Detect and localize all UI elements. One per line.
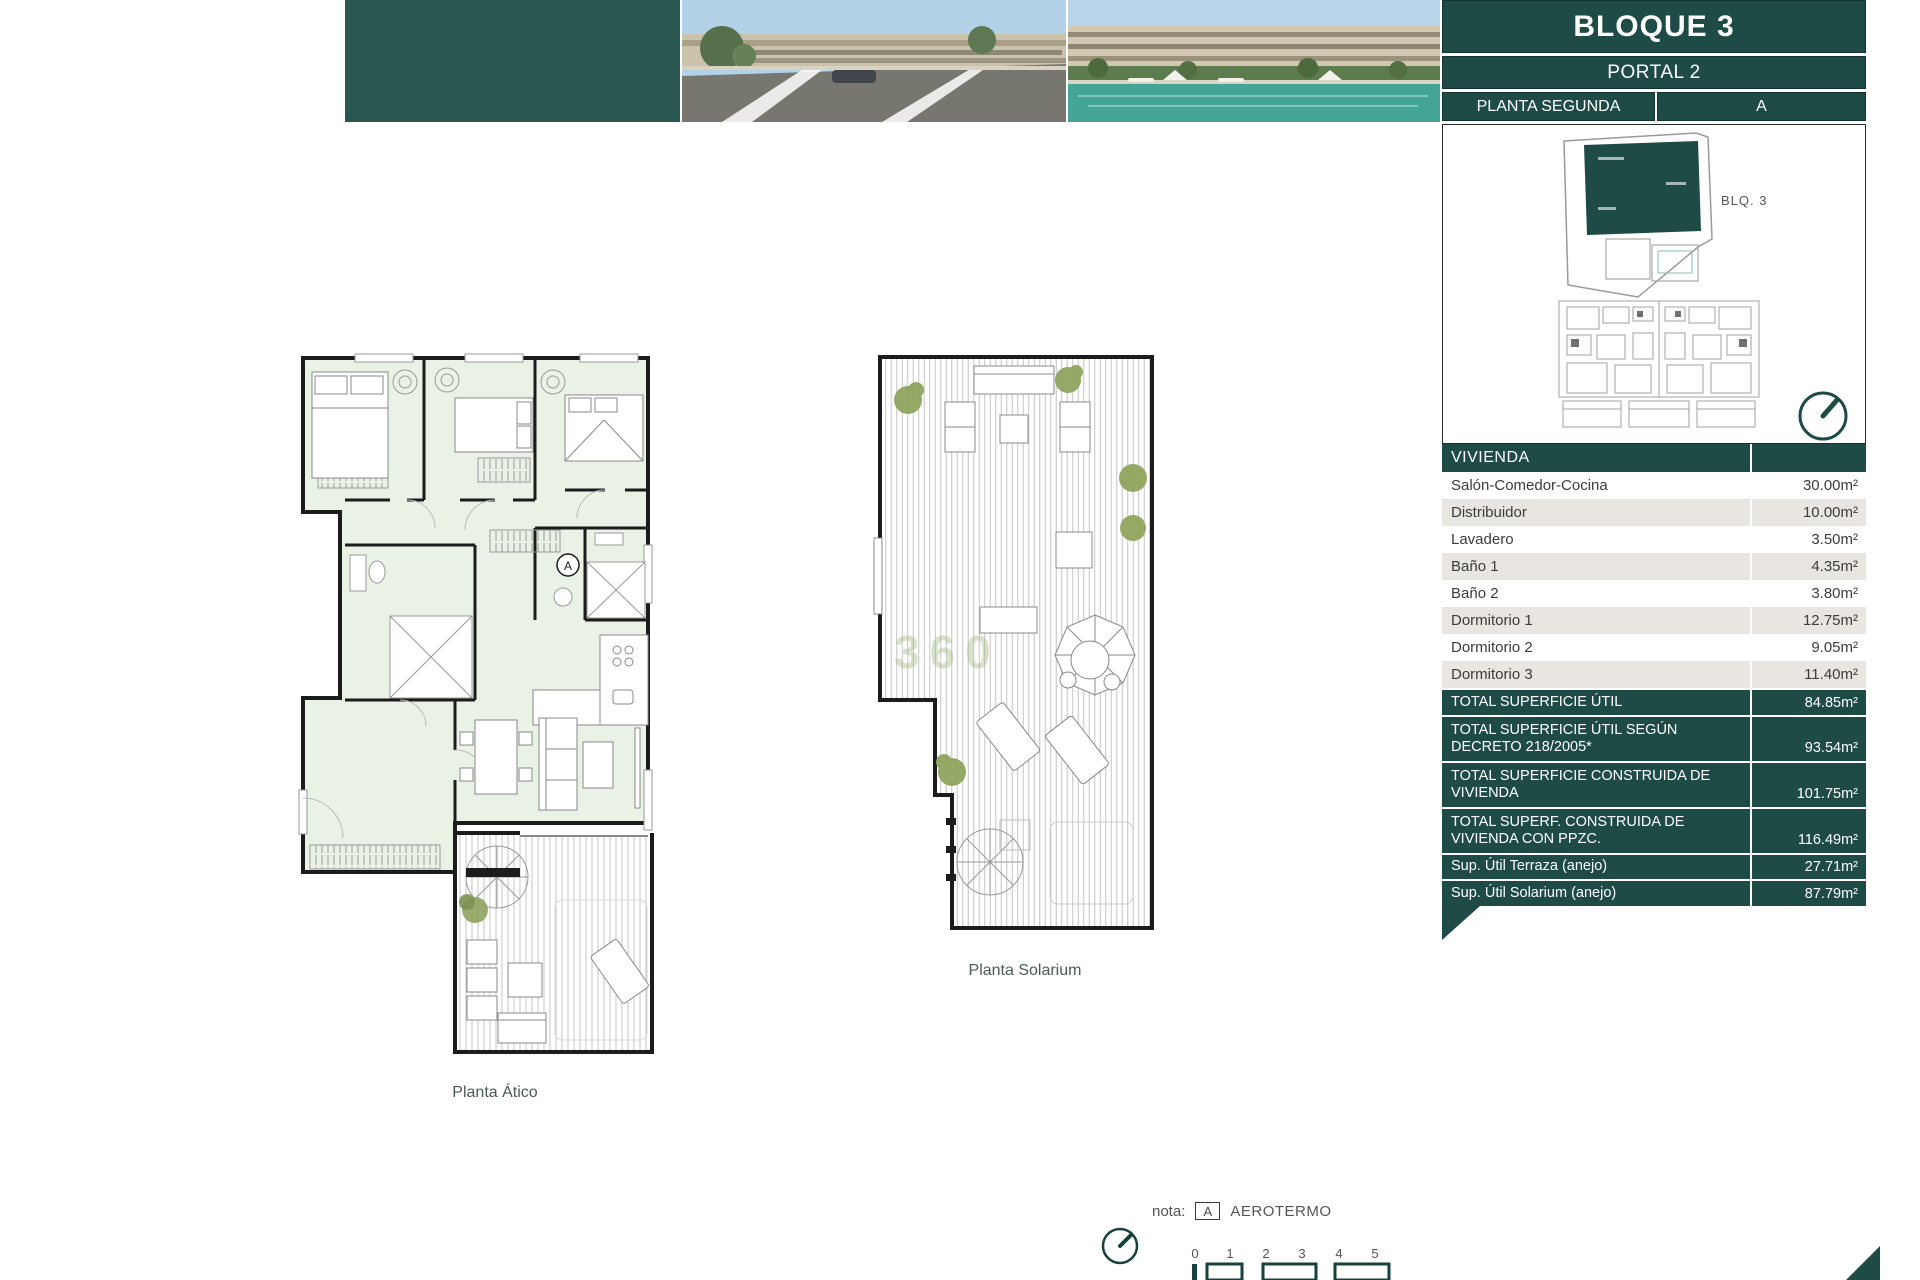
site-plan-block-label: BLQ. 3	[1721, 193, 1767, 208]
table-row: Dormitorio 2 9.05m²	[1442, 634, 1866, 661]
brochure-page: BLOQUE 3 PORTAL 2 PLANTA SEGUNDA A	[0, 0, 1920, 1280]
total-label: TOTAL SUPERFICIE ÚTIL	[1442, 690, 1752, 715]
total-value: 93.54m²	[1752, 717, 1866, 761]
table-row: Distribuidor 10.00m²	[1442, 499, 1866, 526]
scale-tick: 0	[1191, 1246, 1198, 1261]
block-title-text: BLOQUE 3	[1573, 10, 1734, 44]
unit-label: A	[1756, 98, 1767, 116]
key-plan-box: BLQ. 3	[1442, 124, 1866, 444]
room-area: 30.00m²	[1752, 472, 1866, 499]
nota-row: nota: A AEROTERMO	[1152, 1202, 1332, 1220]
room-label: Dormitorio 1	[1442, 607, 1752, 634]
scale-tick: 4	[1335, 1246, 1342, 1261]
site-plan: BLQ. 3	[1546, 127, 1776, 302]
room-area: 9.05m²	[1752, 634, 1866, 661]
watermark-360: 360	[894, 626, 1001, 678]
aerotermo-marker: A	[564, 559, 572, 573]
floor-unit-row: PLANTA SEGUNDA A	[1442, 92, 1866, 121]
portal-title-text: PORTAL 2	[1607, 62, 1700, 84]
room-area: 10.00m²	[1752, 499, 1866, 526]
total-value: 27.71m²	[1752, 855, 1866, 879]
aerotermo-key-icon: A	[1195, 1202, 1220, 1220]
room-area: 4.35m²	[1752, 553, 1866, 580]
scale-tick: 2	[1262, 1246, 1269, 1261]
total-label: Sup. Útil Terraza (anejo)	[1442, 855, 1752, 879]
table-header-row: VIVIENDA	[1442, 444, 1866, 472]
room-area: 3.50m²	[1752, 526, 1866, 553]
floor-label: PLANTA SEGUNDA	[1477, 98, 1621, 116]
table-row: Baño 2 3.80m²	[1442, 580, 1866, 607]
table-row: Salón-Comedor-Cocina 30.00m²	[1442, 472, 1866, 499]
scale-tick: 3	[1298, 1246, 1305, 1261]
photo-street	[682, 0, 1066, 122]
room-label: Salón-Comedor-Cocina	[1442, 472, 1752, 499]
table-header-value	[1752, 444, 1866, 472]
floor-plan-solarium: 360	[872, 350, 1162, 935]
total-label: Sup. Útil Solarium (anejo)	[1442, 881, 1752, 906]
north-arrow-icon	[1795, 388, 1851, 444]
room-label: Distribuidor	[1442, 499, 1752, 526]
floor-cell: PLANTA SEGUNDA	[1442, 92, 1655, 121]
total-value: 101.75m²	[1752, 763, 1866, 807]
room-area: 12.75m²	[1752, 607, 1866, 634]
total-row: TOTAL SUPERF. CONSTRUIDA DE VIVIENDA CON…	[1442, 807, 1866, 853]
nota-prefix: nota:	[1152, 1203, 1185, 1220]
scale-bar: 0 1 2 3 4 5	[1182, 1246, 1392, 1280]
room-area: 11.40m²	[1752, 661, 1866, 688]
photo-pool	[1068, 0, 1440, 122]
total-row: Sup. Útil Terraza (anejo) 27.71m²	[1442, 853, 1866, 879]
room-label: Baño 1	[1442, 553, 1752, 580]
total-value: 84.85m²	[1752, 690, 1866, 715]
room-label: Dormitorio 2	[1442, 634, 1752, 661]
header-color-block	[345, 0, 680, 122]
atico-label: Planta Ático	[385, 1084, 605, 1102]
table-row: Dormitorio 1 12.75m²	[1442, 607, 1866, 634]
room-label: Lavadero	[1442, 526, 1752, 553]
page-fold-icon	[1442, 906, 1482, 942]
surfaces-table: VIVIENDA Salón-Comedor-Cocina 30.00m² Di…	[1442, 444, 1866, 906]
unit-cell: A	[1657, 92, 1866, 121]
total-row: TOTAL SUPERFICIE ÚTIL SEGÚN DECRETO 218/…	[1442, 715, 1866, 761]
total-label: TOTAL SUPERFICIE CONSTRUIDA DE VIVIENDA	[1442, 763, 1752, 807]
nota-text: AEROTERMO	[1230, 1203, 1331, 1220]
corner-fold-icon	[1846, 1246, 1880, 1280]
room-area: 3.80m²	[1752, 580, 1866, 607]
scale-tick: 1	[1226, 1246, 1233, 1261]
room-label: Baño 2	[1442, 580, 1752, 607]
total-row: Sup. Útil Solarium (anejo) 87.79m²	[1442, 879, 1866, 906]
table-row: Dormitorio 3 11.40m²	[1442, 661, 1866, 688]
solarium-label: Planta Solarium	[915, 962, 1135, 980]
total-value: 87.79m²	[1752, 881, 1866, 906]
total-label: TOTAL SUPERF. CONSTRUIDA DE VIVIENDA CON…	[1442, 809, 1752, 853]
total-row: TOTAL SUPERFICIE CONSTRUIDA DE VIVIENDA …	[1442, 761, 1866, 807]
table-row: Lavadero 3.50m²	[1442, 526, 1866, 553]
scale-tick: 5	[1371, 1246, 1378, 1261]
table-header-label: VIVIENDA	[1442, 444, 1752, 472]
units-key-drawing	[1553, 299, 1765, 431]
floor-plan-atico: A	[295, 350, 660, 1060]
total-label: TOTAL SUPERFICIE ÚTIL SEGÚN DECRETO 218/…	[1442, 717, 1752, 761]
total-row: TOTAL SUPERFICIE ÚTIL 84.85m²	[1442, 688, 1866, 715]
room-label: Dormitorio 3	[1442, 661, 1752, 688]
table-row: Baño 1 4.35m²	[1442, 553, 1866, 580]
total-value: 116.49m²	[1752, 809, 1866, 853]
block-title: BLOQUE 3	[1442, 0, 1866, 53]
info-panel: BLOQUE 3 PORTAL 2 PLANTA SEGUNDA A	[1442, 0, 1866, 1280]
portal-title: PORTAL 2	[1442, 56, 1866, 89]
north-arrow-small-icon	[1098, 1224, 1142, 1268]
